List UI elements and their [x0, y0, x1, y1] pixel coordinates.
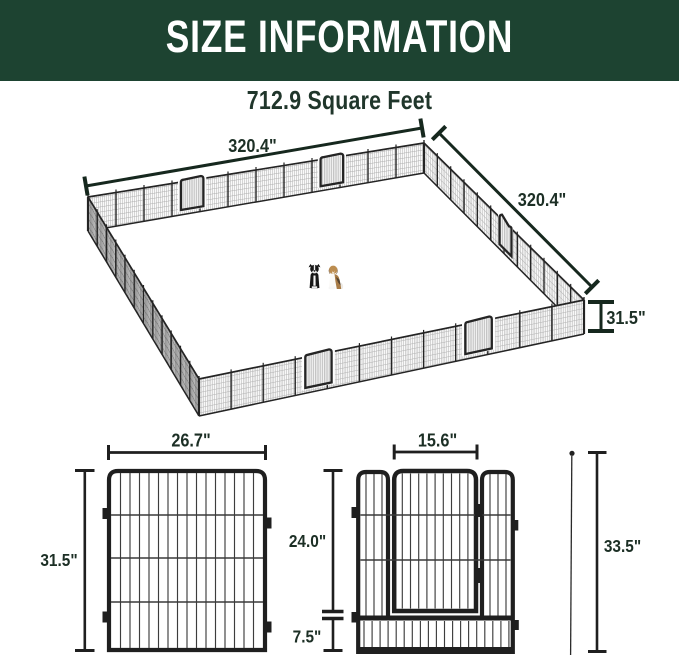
svg-text:24.0": 24.0" — [289, 532, 326, 551]
svg-text:31.5": 31.5" — [606, 307, 645, 328]
svg-text:7.5": 7.5" — [293, 628, 322, 647]
svg-text:320.4": 320.4" — [228, 135, 276, 156]
svg-text:31.5": 31.5" — [40, 551, 77, 570]
svg-text:15.6": 15.6" — [418, 430, 457, 451]
svg-text:320.4": 320.4" — [518, 189, 566, 210]
svg-text:26.7": 26.7" — [171, 430, 210, 451]
svg-text:33.5": 33.5" — [604, 537, 641, 556]
